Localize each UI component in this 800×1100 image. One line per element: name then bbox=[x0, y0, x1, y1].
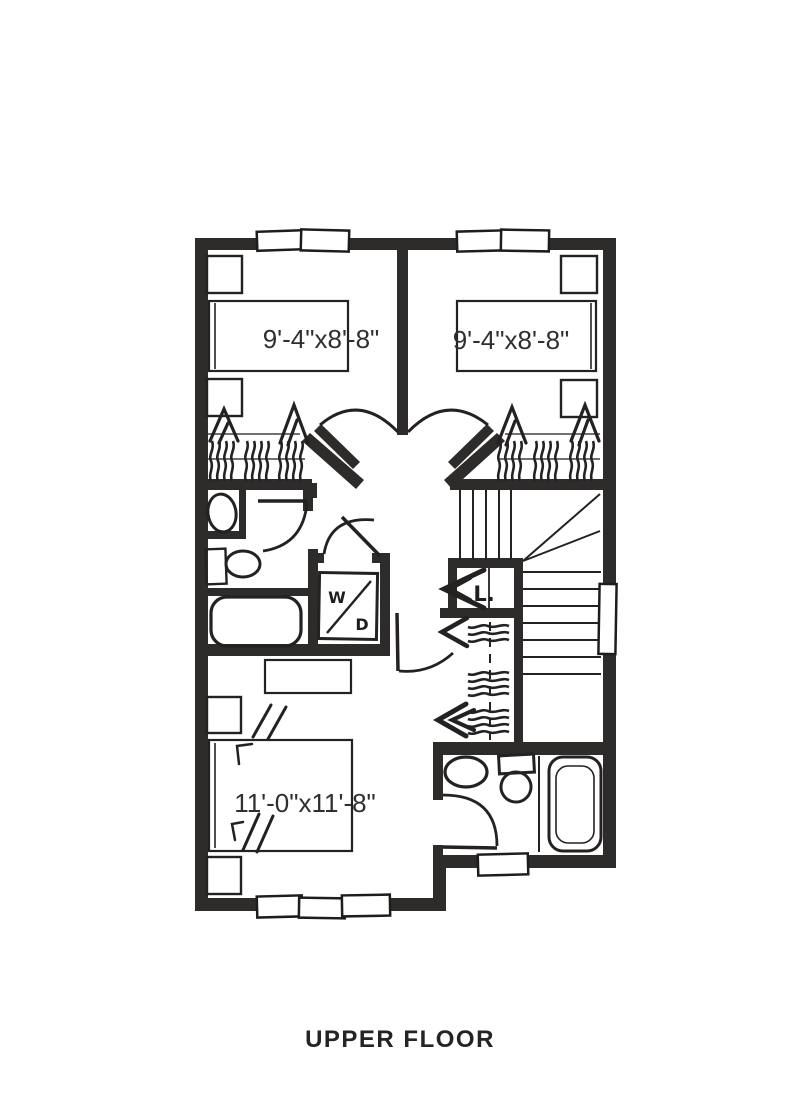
wall-tub-alcove bbox=[203, 588, 308, 596]
floor-plan-page: 9'-4"x8'-8" 9'-4"x8'-8" 11'-0"x11'-8" W … bbox=[0, 0, 800, 1100]
dresser bbox=[265, 660, 351, 693]
door-arc bbox=[263, 503, 307, 551]
stair-winder bbox=[523, 494, 600, 561]
door-arc bbox=[320, 410, 398, 432]
clothes-squiggles-left bbox=[210, 441, 303, 481]
wall-bath1-right-upper bbox=[303, 485, 313, 511]
bedroom-right-dimension: 9'-4"x8'-8" bbox=[453, 325, 570, 355]
window-icon bbox=[257, 895, 303, 917]
bathtub-icon bbox=[211, 597, 301, 646]
nightstand bbox=[561, 380, 597, 417]
window-icon bbox=[501, 230, 549, 252]
master-bedroom-dimension: 11'-0"x11'-8" bbox=[234, 788, 376, 818]
door-arc bbox=[408, 410, 488, 432]
nightstand bbox=[207, 256, 242, 293]
wall-bath2-left-lower bbox=[433, 845, 443, 868]
window-icon bbox=[457, 230, 505, 251]
nightstand bbox=[561, 256, 597, 293]
washer-label: W bbox=[328, 588, 346, 607]
door-leaf bbox=[397, 613, 398, 671]
sink-icon bbox=[226, 551, 260, 577]
wall-bath2-left-upper bbox=[433, 742, 443, 800]
door-arc bbox=[443, 795, 497, 846]
toilet-icon bbox=[205, 492, 238, 534]
master-bathroom-fixtures bbox=[445, 754, 601, 852]
sink-cabinet bbox=[205, 549, 226, 585]
window-icon bbox=[342, 895, 390, 917]
wall-stair-left bbox=[514, 558, 523, 745]
nightstand bbox=[207, 857, 241, 894]
door-arc bbox=[399, 653, 453, 671]
floor-title: UPPER FLOOR bbox=[0, 1026, 800, 1054]
wall-laundry-top-stub-left bbox=[308, 553, 324, 563]
window-icon bbox=[299, 898, 345, 919]
stair-winder bbox=[523, 531, 600, 561]
bathtub-inner bbox=[556, 766, 594, 843]
wall-bedroom-divider bbox=[397, 247, 408, 435]
clothes-squiggles-master bbox=[468, 625, 509, 734]
window-icon bbox=[301, 229, 350, 251]
wall-laundry-right bbox=[380, 556, 390, 655]
wall-right bbox=[603, 238, 616, 868]
dryer-label: D bbox=[355, 615, 368, 634]
wall-laundry-left bbox=[308, 549, 318, 655]
window-icon bbox=[257, 230, 305, 251]
nightstand bbox=[207, 697, 241, 733]
window-icon bbox=[478, 853, 529, 875]
wall-toilet-nook-vert bbox=[239, 487, 246, 537]
wall-laundry-top-stub-right bbox=[372, 553, 390, 563]
floor-plan-drawing: 9'-4"x8'-8" 9'-4"x8'-8" 11'-0"x11'-8" W … bbox=[0, 0, 800, 1100]
window-icon bbox=[598, 584, 616, 654]
master-bedroom-furniture bbox=[207, 660, 352, 894]
clothes-squiggles-right bbox=[498, 441, 594, 481]
hall-bathroom-fixtures bbox=[205, 492, 301, 646]
sink-icon bbox=[445, 757, 487, 787]
linen-closet-label: L. bbox=[473, 582, 494, 606]
door-leaf bbox=[443, 847, 497, 848]
bedroom-left-dimension: 9'-4"x8'-8" bbox=[263, 324, 380, 354]
